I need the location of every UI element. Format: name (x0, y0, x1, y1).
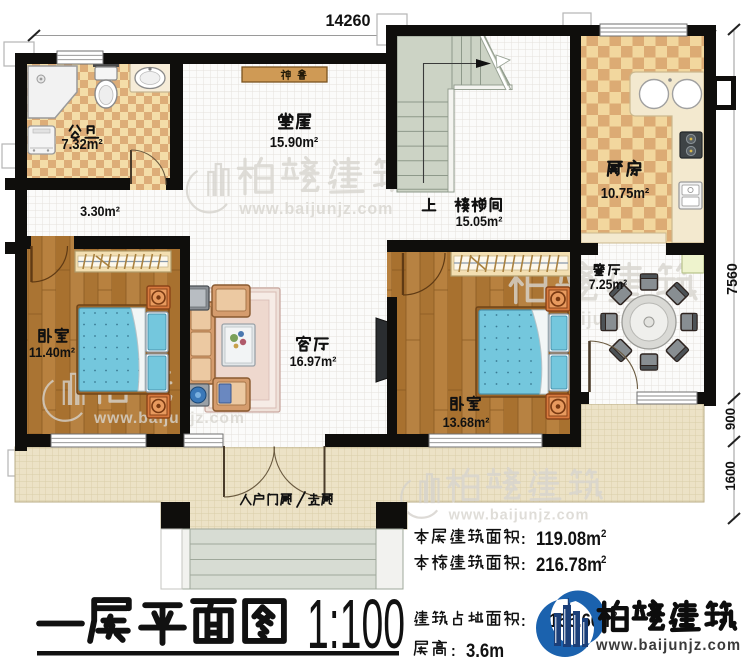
svg-text:www.baijunjz.com: www.baijunjz.com (238, 200, 393, 218)
svg-text:3.6m: 3.6m (466, 640, 504, 661)
svg-text::: : (451, 642, 456, 660)
svg-text::: : (521, 556, 526, 574)
svg-text:216.78m: 216.78m (536, 554, 602, 575)
svg-text:13.68m²: 13.68m² (443, 414, 490, 430)
svg-text:10.75m²: 10.75m² (601, 185, 650, 201)
svg-text:11.40m²: 11.40m² (29, 344, 76, 360)
svg-text:2: 2 (601, 555, 607, 567)
svg-text:15.05m²: 15.05m² (456, 213, 503, 229)
svg-text:7.25m²: 7.25m² (589, 276, 627, 292)
svg-text:7.32m²: 7.32m² (61, 136, 103, 152)
svg-text:7560: 7560 (725, 263, 741, 295)
svg-text:3.30m²: 3.30m² (80, 203, 120, 219)
svg-text:14260: 14260 (326, 11, 371, 30)
svg-text:900: 900 (723, 408, 738, 431)
svg-text:www.baijunjz.com: www.baijunjz.com (448, 507, 590, 523)
svg-text::: : (521, 612, 526, 630)
svg-text:15.90m²: 15.90m² (270, 134, 319, 150)
svg-text:119.08m: 119.08m (536, 528, 601, 549)
svg-text:2: 2 (601, 529, 607, 541)
svg-text::: : (521, 530, 526, 548)
svg-text:16.97m²: 16.97m² (290, 353, 337, 369)
svg-text:1600: 1600 (723, 461, 738, 491)
svg-text:www.baijunjz.com: www.baijunjz.com (595, 637, 741, 654)
